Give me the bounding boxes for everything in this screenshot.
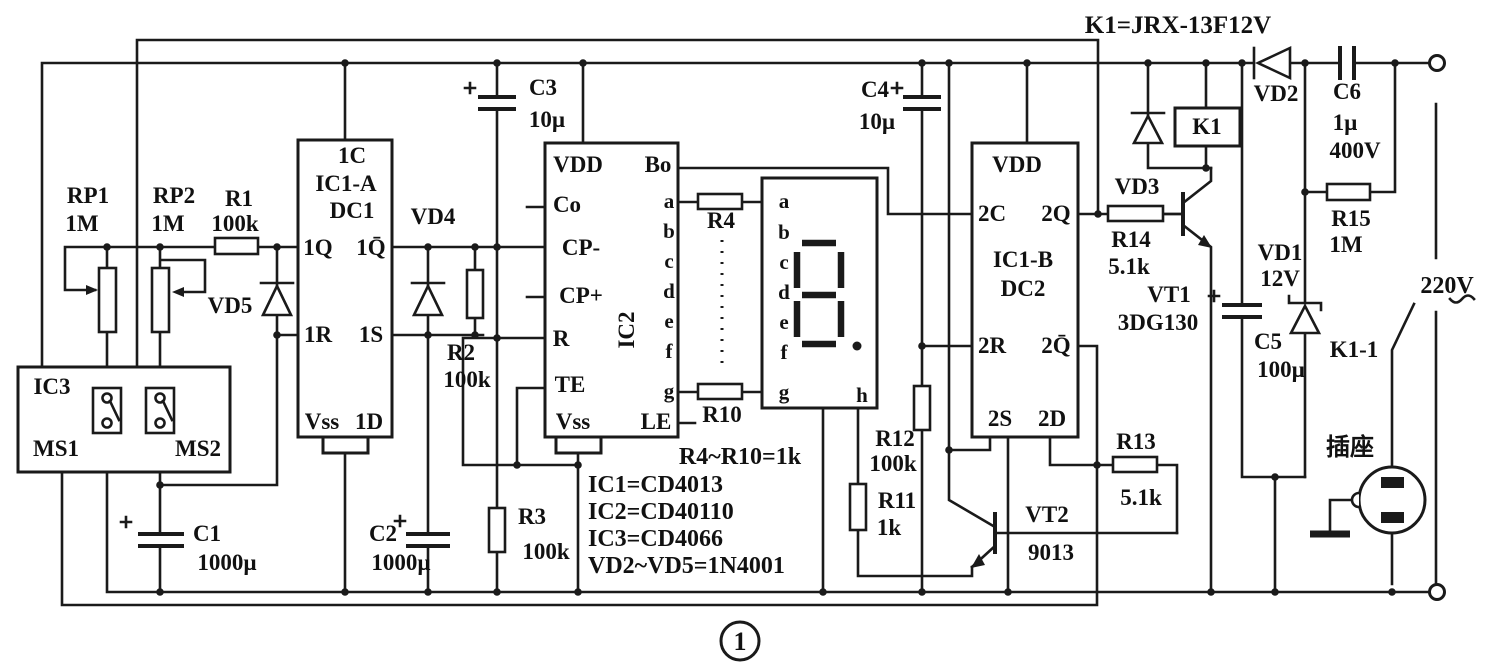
label-r2-value: 100k <box>443 367 491 392</box>
socket-prong-top <box>1381 477 1404 488</box>
label-r14: R14 <box>1111 227 1151 252</box>
wire-c4-r12 <box>922 63 972 592</box>
wire-k1-contact <box>1392 304 1414 584</box>
label-disp-b: b <box>778 220 790 244</box>
label-ic1b-vdd: VDD <box>992 152 1042 177</box>
rp1-wiper-arrow <box>86 285 98 295</box>
label-r4: R4 <box>707 208 736 233</box>
wire-vt2-ce <box>972 533 1177 567</box>
label-pin-1d: 1D <box>355 409 383 434</box>
label-k1: K1 <box>1192 114 1221 139</box>
label-c5: C5 <box>1254 329 1282 354</box>
label-ic1b-dc2: DC2 <box>1001 276 1046 301</box>
label-ic2-vss: Vss <box>556 409 591 434</box>
label-note-ic1: IC1=CD4013 <box>588 472 723 498</box>
ms1-contact-bottom <box>103 419 112 428</box>
label-pin-1q: 1Q <box>303 235 332 260</box>
label-ic2-f: f <box>666 339 674 363</box>
label-ic2-te: TE <box>555 372 586 397</box>
label-r15: R15 <box>1331 206 1371 231</box>
c3-plates <box>478 97 516 109</box>
label-ic2-r: R <box>553 326 570 351</box>
label-rp2: RP2 <box>153 183 195 208</box>
label-vd3: VD3 <box>1115 174 1160 199</box>
label-r15-value: 1M <box>1329 232 1363 257</box>
mains-terminal-bottom <box>1430 585 1445 600</box>
label-c4-value: 10µ <box>859 109 895 134</box>
label-r1-value: 100k <box>211 211 259 236</box>
c1-plates <box>138 534 184 546</box>
mains-terminal-top <box>1430 56 1445 71</box>
label-pin-2s: 2S <box>988 406 1012 431</box>
label-c6: C6 <box>1333 79 1361 104</box>
r1-body <box>215 238 258 254</box>
label-ic2-g: g <box>664 379 675 403</box>
label-note-ic3: IC3=CD4066 <box>588 526 723 552</box>
decimal-point <box>853 342 862 351</box>
label-r13-value: 5.1k <box>1120 485 1162 510</box>
vd1-zener <box>1291 306 1319 333</box>
circuit-schematic: K1=JRX-13F12V RP1 1M RP2 1M R1 100k VD5 … <box>0 0 1491 671</box>
label-k1-model: K1=JRX-13F12V <box>1085 12 1271 39</box>
label-vt1-value: 3DG130 <box>1118 310 1199 335</box>
label-r13: R13 <box>1116 429 1156 454</box>
label-vt2: VT2 <box>1025 502 1068 527</box>
r14-body <box>1108 206 1163 221</box>
socket-circle <box>1359 467 1425 533</box>
label-c2: C2 <box>369 521 397 546</box>
label-pin-1r: 1R <box>304 322 333 347</box>
label-r3: R3 <box>518 504 546 529</box>
label-disp-c: c <box>779 250 788 274</box>
label-vt2-value: 9013 <box>1028 540 1074 565</box>
label-disp-h: h <box>856 383 868 407</box>
label-c5-value: 100µ <box>1257 357 1305 382</box>
label-disp-g: g <box>779 380 790 404</box>
rp1-body <box>99 268 116 332</box>
label-pin-1s: 1S <box>359 322 383 347</box>
rp2-body <box>152 268 169 332</box>
socket-prong-bottom <box>1381 512 1404 523</box>
label-pin-1qbar: 1Q̄ <box>356 235 385 260</box>
ms2-contact-bottom <box>156 419 165 428</box>
label-pin-2c: 2C <box>978 201 1006 226</box>
label-note-diodes: VD2~VD5=1N4001 <box>588 553 785 579</box>
label-socket: 插座 <box>1326 433 1374 461</box>
rp2-wiper-arrow <box>172 287 184 297</box>
label-ic2-name: IC2 <box>614 311 639 348</box>
label-rp2-value: 1M <box>151 211 185 236</box>
vd3-diode <box>1134 116 1162 143</box>
label-ic2-a: a <box>664 189 675 213</box>
c5-plates <box>1222 305 1262 317</box>
r15-body <box>1327 184 1370 200</box>
r12-body <box>914 386 930 430</box>
label-ic3: IC3 <box>33 374 70 399</box>
ic2-vss-tab <box>556 437 601 453</box>
vd4-diode <box>414 286 442 315</box>
r13-body <box>1113 457 1157 472</box>
label-r1: R1 <box>225 186 253 211</box>
label-r3-value: 100k <box>522 539 570 564</box>
label-figure-number: 1 <box>734 627 747 656</box>
label-pin-2r: 2R <box>978 333 1007 358</box>
c1-plus <box>121 517 131 527</box>
label-pin-2q: 2Q <box>1041 201 1070 226</box>
label-rp1-value: 1M <box>65 211 99 236</box>
label-pin-2d: 2D <box>1038 406 1066 431</box>
label-c3-value: 10µ <box>529 107 565 132</box>
label-ic2-co: Co <box>553 192 581 217</box>
label-c2-value: 1000µ <box>371 550 430 575</box>
label-c4: C4 <box>861 77 890 102</box>
label-r10: R10 <box>702 402 742 427</box>
wire-vt1 <box>1163 168 1211 592</box>
label-mains-voltage: 220V <box>1420 273 1474 299</box>
label-c6-value2: 400V <box>1329 138 1381 163</box>
label-ms2: MS2 <box>175 436 221 461</box>
label-r11: R11 <box>878 488 916 513</box>
label-vd5: VD5 <box>208 293 253 318</box>
label-r14-value: 5.1k <box>1108 254 1150 279</box>
label-ic2-c: c <box>664 249 673 273</box>
vd2-diode <box>1258 48 1290 78</box>
label-note-ic2: IC2=CD40110 <box>588 499 734 525</box>
schematic-page: K1=JRX-13F12V RP1 1M RP2 1M R1 100k VD5 … <box>0 0 1491 671</box>
c3-plus <box>465 83 475 93</box>
labels: K1=JRX-13F12V RP1 1M RP2 1M R1 100k VD5 … <box>33 12 1474 656</box>
label-ic1a-1c: 1C <box>338 143 366 168</box>
label-disp-e: e <box>779 310 788 334</box>
r4-body <box>698 194 742 209</box>
c4-plus <box>892 83 902 93</box>
label-ic2-e: e <box>664 309 673 333</box>
label-ic1a-name: IC1-A <box>315 171 377 196</box>
label-r2: R2 <box>447 340 475 365</box>
r2-body <box>467 270 483 318</box>
label-ic2-cpplus: CP+ <box>559 283 603 308</box>
label-c3: C3 <box>529 75 557 100</box>
label-r12-value: 100k <box>869 451 917 476</box>
label-disp-a: a <box>779 189 790 213</box>
label-r11-value: 1k <box>877 515 902 540</box>
label-ic2-le: LE <box>641 409 672 434</box>
label-rp1: RP1 <box>67 183 109 208</box>
c4-plates <box>903 97 941 109</box>
vd5-diode <box>263 286 291 315</box>
label-ic2-d: d <box>663 279 675 303</box>
r11-body <box>850 484 866 530</box>
label-note-resistors: R4~R10=1k <box>679 444 802 470</box>
label-disp-f: f <box>781 340 789 364</box>
label-ic2-cpminus: CP- <box>562 235 600 260</box>
socket-symbol <box>1310 467 1425 534</box>
label-ic1b-name: IC1-B <box>993 247 1053 272</box>
ic1a-vss-tab <box>323 437 368 453</box>
label-ms1: MS1 <box>33 436 79 461</box>
label-c6-value1: 1µ <box>1333 110 1358 135</box>
label-disp-d: d <box>778 280 790 304</box>
label-r12: R12 <box>875 426 915 451</box>
label-vd4: VD4 <box>411 204 456 229</box>
label-vd1: VD1 <box>1258 240 1303 265</box>
label-ic2-vdd: VDD <box>553 152 603 177</box>
c6-plates <box>1340 46 1354 80</box>
label-ic1a-dc1: DC1 <box>330 198 375 223</box>
label-vd2: VD2 <box>1254 81 1299 106</box>
label-vd1-value: 12V <box>1260 266 1300 291</box>
label-c1: C1 <box>193 521 221 546</box>
socket-notch <box>1352 493 1359 507</box>
label-ic2-b: b <box>663 219 675 243</box>
label-ic2-bo: Bo <box>645 152 672 177</box>
label-k1-contact: K1-1 <box>1330 337 1379 362</box>
label-vt1: VT1 <box>1147 282 1190 307</box>
label-pin-2qbar: 2Q̄ <box>1041 333 1070 358</box>
r10-body <box>698 384 742 399</box>
r3-body <box>489 508 505 552</box>
label-pin-1vss: Vss <box>305 409 340 434</box>
c2-plates <box>406 534 450 546</box>
label-c1-value: 1000µ <box>197 550 256 575</box>
